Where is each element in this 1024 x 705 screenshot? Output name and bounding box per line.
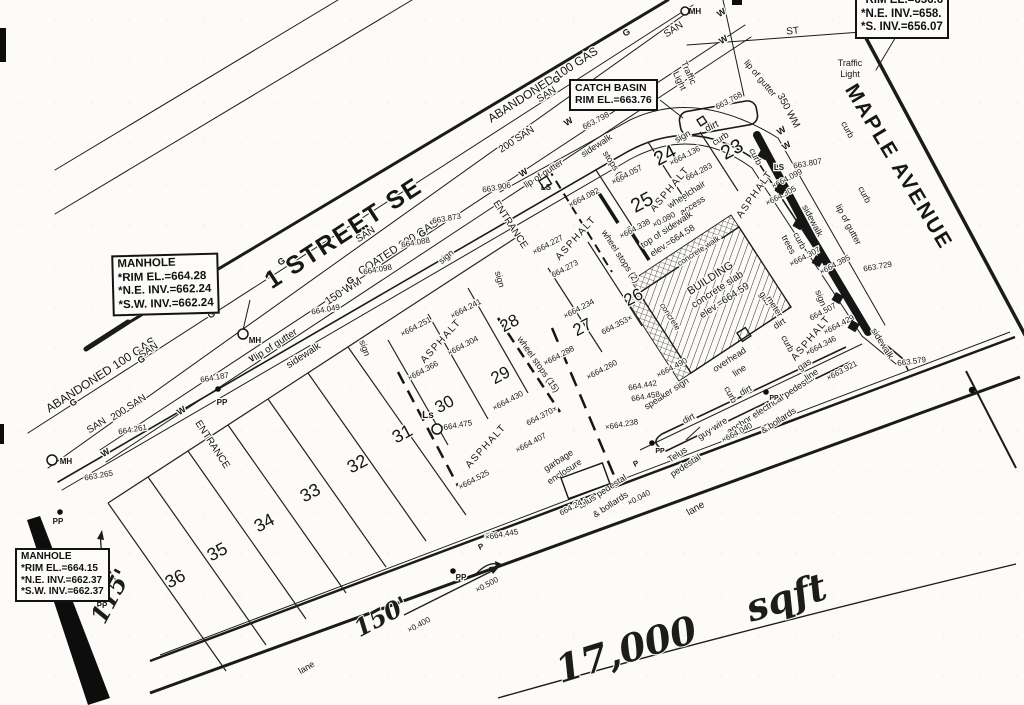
pp-label: PP — [456, 573, 467, 582]
spot-elevation: ×664.525 — [457, 468, 491, 492]
lane-utility-line — [160, 332, 1010, 655]
map-label: lip of gutter — [834, 203, 864, 247]
info-line: *RIM EL.=656.6 — [861, 0, 943, 8]
spot-elevation: 664.187 — [200, 371, 231, 385]
site-plan-drawing: 1 STREET SEMAPLE AVENUEABANDONED 100 GAS… — [0, 0, 1024, 705]
spot-elevation: ×664.407 — [514, 431, 548, 455]
map-label: sign — [357, 339, 372, 358]
stall-number: 29 — [488, 362, 514, 388]
street-edge-end — [86, 322, 128, 349]
sanitary-label: 200 SAN — [497, 124, 537, 155]
spot-elevation: 664.273 — [550, 258, 580, 280]
water-main-label: 150 WM — [323, 275, 364, 307]
stall-number: 36 — [162, 565, 189, 592]
map-label: W — [775, 124, 788, 137]
street-name-1-street-se: 1 STREET SE — [260, 172, 428, 294]
map-label: curb — [856, 185, 873, 205]
map-label: Light — [840, 69, 860, 79]
pp-label: PP — [53, 517, 64, 526]
lane-label: lane — [685, 499, 707, 518]
map-label: lip of gutter — [742, 58, 778, 99]
pp-label: PP — [217, 398, 228, 407]
manhole-info-box-nw: MANHOLE *RIM EL.=664.28 *N.E. INV.=662.2… — [111, 253, 220, 317]
map-label: W — [715, 6, 728, 19]
map-label: W — [562, 115, 575, 128]
manhole-symbol — [238, 329, 248, 339]
map-label: sidewalk — [869, 326, 896, 361]
info-line: CATCH BASIN — [575, 82, 652, 94]
stall-number: 28 — [497, 310, 523, 336]
map-label: Traffic — [838, 58, 863, 68]
street-name-maple-avenue: MAPLE AVENUE — [840, 80, 957, 253]
street-abbrev: ST — [786, 25, 800, 37]
lane-label: lane — [297, 659, 317, 676]
spot-elevation: ×0.040 — [626, 488, 653, 508]
spot-elevation: ×664.260 — [585, 358, 619, 382]
map-label: ASPHALT — [464, 422, 509, 470]
map-label: W — [780, 139, 793, 152]
spot-elevation: 664.370× — [525, 404, 559, 428]
pp-label: PP — [655, 448, 665, 455]
map-label: sign — [673, 128, 692, 145]
info-line: *N.E. INV.=658. — [861, 8, 943, 22]
stall-number: 34 — [251, 509, 278, 536]
spot-elevation: 664.353× — [600, 313, 634, 337]
map-label: wheel stops (15) — [515, 334, 562, 395]
map-label: P — [477, 541, 486, 552]
spot-elevation: ×664.241 — [449, 297, 483, 321]
spot-elevation: ×0.400 — [406, 615, 433, 635]
stall-number: 33 — [297, 479, 324, 506]
map-label: dirt — [738, 383, 754, 398]
sanitary-label: 200 SAN — [109, 392, 149, 423]
manhole-symbol — [47, 455, 57, 465]
map-label: P — [632, 458, 641, 469]
map-label: curb — [722, 385, 739, 405]
water-main-label: 350 WM — [775, 92, 802, 130]
spot-elevation: 664.049 — [311, 303, 342, 317]
spot-elevation: ×664.082 — [567, 186, 601, 210]
maple-east-edge — [866, 38, 1024, 335]
stall-number: 31 — [389, 420, 416, 447]
spot-elevation: 663.768 — [714, 90, 744, 112]
wheel-stop-bar — [597, 190, 618, 223]
manhole-symbol — [681, 7, 689, 15]
info-line: *S. INV.=656.07 — [861, 21, 943, 35]
spot-elevation: 663.873 — [432, 212, 463, 226]
info-line: *N.E. INV.=662.37 — [21, 575, 104, 587]
mh-label: MH — [60, 457, 73, 466]
nw-line — [55, 0, 412, 214]
stall-number: 25 — [627, 188, 657, 218]
spot-elevation: ×664.288 — [542, 344, 576, 368]
info-line: *RIM EL.=664.15 — [21, 563, 104, 575]
power-pole-symbol — [763, 389, 769, 395]
spot-elevation: ×664.430 — [491, 389, 525, 413]
spot-elevation: ×664.238 — [604, 417, 639, 432]
ls-label: Ls — [422, 410, 434, 421]
spot-elevation: ×664.251 — [399, 315, 433, 339]
spot-elevation: 663.798 — [581, 110, 611, 132]
info-line: *S.W. INV.=662.37 — [21, 586, 104, 598]
spot-elevation: 664.24 — [558, 498, 584, 518]
scan-mark — [969, 387, 975, 393]
leader-line — [243, 300, 250, 330]
se-line — [966, 371, 1016, 468]
power-pole-symbol — [215, 386, 221, 392]
map-label: line — [731, 362, 748, 378]
stall-number: 30 — [432, 391, 458, 417]
manhole-info-box-sw: MANHOLE *RIM EL.=664.15 *N.E. INV.=662.3… — [15, 548, 110, 602]
spot-elevation: 664.261 — [118, 423, 149, 437]
spot-elevation: 663.729 — [863, 260, 894, 274]
map-label: sign — [493, 270, 507, 289]
survey-site-plan: 1 STREET SEMAPLE AVENUEABANDONED 100 GAS… — [0, 0, 1024, 705]
power-pole-symbol — [649, 440, 655, 446]
mh-label: MH — [249, 336, 262, 345]
spot-elevation: ×664.475 — [438, 418, 473, 433]
map-label: curb — [839, 120, 856, 140]
ls-label: LS — [774, 163, 785, 172]
ls-symbol — [432, 424, 442, 434]
generated-labels: 1 STREET SEMAPLE AVENUEABANDONED 100 GAS… — [43, 6, 975, 692]
power-pole-symbol — [450, 568, 456, 574]
spot-elevation: 663.265 — [84, 469, 115, 483]
map-label: W — [717, 33, 730, 46]
nw-line — [55, 0, 338, 170]
power-pole-symbol — [57, 509, 63, 515]
map-label: G — [621, 26, 632, 38]
manhole-info-box-ne: *RIM EL.=656.6 *N.E. INV.=658. *S. INV.=… — [855, 0, 949, 39]
info-line: MANHOLE — [21, 551, 104, 563]
info-line: RIM EL.=663.76 — [575, 94, 652, 106]
info-line: *S.W. INV.=662.24 — [118, 296, 213, 312]
catch-basin-info-box: CATCH BASIN RIM EL.=663.76 — [569, 79, 658, 111]
mh-label: MH — [689, 7, 702, 16]
entrance-label: ENTRANCE — [491, 199, 530, 251]
spot-elevation: 663.906 — [482, 181, 513, 195]
stall-number: 32 — [344, 450, 371, 477]
pp-label: PP — [769, 395, 779, 402]
spot-elevation: ×663.921 — [825, 359, 859, 383]
handwritten-dim-150ft: 150' — [349, 590, 413, 643]
handwritten-area-value: 17,000 — [550, 606, 703, 692]
